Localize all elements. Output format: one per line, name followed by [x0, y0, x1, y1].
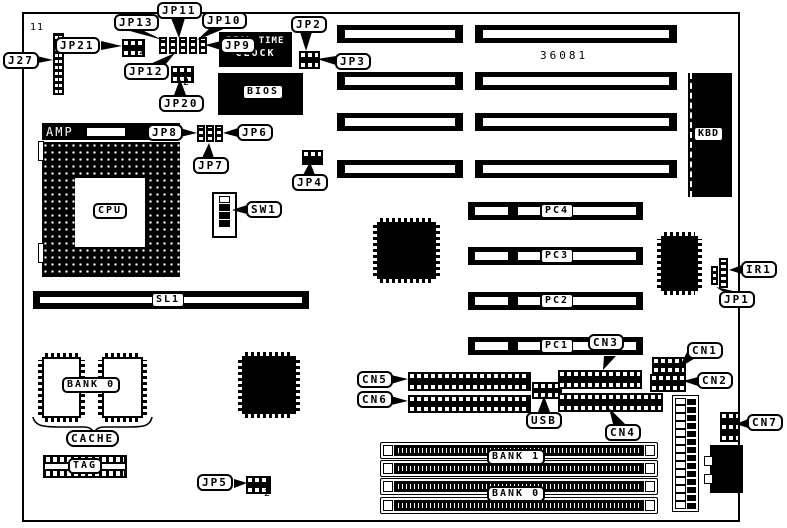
slot-stripe — [345, 118, 455, 126]
callout-jp9: JP9 — [220, 37, 256, 54]
jp2-jp3-jumper — [299, 51, 320, 69]
pin-row — [722, 436, 738, 440]
pin-row — [560, 383, 640, 387]
slot-stripe — [573, 297, 636, 305]
pc4-label: PC4 — [541, 204, 573, 218]
jumper-block-3 — [179, 37, 187, 54]
pin-row — [560, 406, 661, 410]
slot-stripe — [475, 297, 508, 305]
simm-clip — [645, 445, 655, 456]
pin-pattern — [217, 127, 221, 140]
callout-cn3: CN3 — [588, 334, 624, 351]
chipset-qfp-left — [238, 352, 300, 418]
jp20-pin2-annotation: 2 — [183, 77, 190, 88]
pin-pattern — [199, 127, 203, 140]
slot-stripe — [518, 297, 540, 305]
callout-cn7: CN7 — [747, 414, 783, 431]
pin-pattern — [208, 127, 212, 140]
pc3-label: PC3 — [541, 249, 573, 263]
callout-cn5: CN5 — [357, 371, 393, 388]
callout-usb: USB — [526, 412, 562, 429]
simm-clip — [383, 481, 393, 492]
cpu-label: CPU — [93, 203, 127, 219]
jp8-jumper-1 — [197, 125, 205, 142]
jumper-block-5 — [199, 37, 207, 54]
plug-notch — [704, 456, 713, 466]
cache-label: CACHE — [66, 430, 119, 447]
callout-jp10: JP10 — [202, 12, 247, 29]
callout-j27: J27 — [3, 52, 39, 69]
pin-row — [534, 384, 560, 388]
pin-stubs — [245, 414, 293, 418]
amp-text: AMP — [46, 125, 74, 139]
cn2-jumper — [650, 374, 686, 392]
ir1-jumper-right — [719, 258, 728, 288]
jp8-jumper-3 — [215, 125, 223, 142]
isa-slot-4-right — [475, 160, 677, 178]
sl1-label: SL1 — [152, 293, 184, 307]
tag-label: TAG — [68, 458, 102, 474]
callout-jp1: JP1 — [719, 291, 755, 308]
pin-stubs — [143, 360, 147, 415]
motherboard-diagram: 36081 KBD REAL TIME CLOCK BIOS 2 11 2 AM… — [0, 0, 787, 528]
jp8-jumper-2 — [206, 125, 214, 142]
chip-body — [661, 236, 698, 291]
plug-notch — [704, 474, 713, 484]
pin-pattern — [181, 39, 185, 52]
ir1-jumper-left — [711, 266, 718, 285]
j27-pincount-annotation: 11 — [30, 22, 44, 33]
slot-stripe — [345, 165, 455, 173]
simm-ticks — [398, 503, 640, 508]
isa-slot-3-left — [337, 113, 463, 131]
pin-row — [301, 53, 318, 57]
cn4-header — [558, 393, 663, 412]
jp4-jumper — [302, 150, 323, 165]
callout-jp12: JP12 — [124, 63, 169, 80]
callout-cn1: CN1 — [687, 342, 723, 359]
pin-row — [410, 385, 529, 389]
dip-cell — [219, 204, 230, 211]
callout-jp4: JP4 — [292, 174, 328, 191]
amp-window — [87, 128, 125, 136]
kbd-dashed-edge — [690, 73, 692, 197]
callout-jp13: JP13 — [114, 14, 159, 31]
pin-stubs — [436, 225, 440, 276]
cache-bank0-label: BANK 0 — [62, 377, 120, 393]
cn3-header — [558, 370, 642, 389]
pin-pattern — [161, 39, 165, 52]
isa-slot-2-right — [475, 72, 677, 90]
cn7-jumper — [720, 412, 740, 442]
dip-cell-open — [219, 196, 230, 203]
callout-jp21: JP21 — [55, 37, 100, 54]
slot-stripe — [475, 342, 508, 350]
callout-cn4: CN4 — [605, 424, 641, 441]
io-qfp-right — [657, 232, 702, 295]
pin-row — [652, 376, 684, 380]
pc1-label: PC1 — [541, 339, 573, 353]
bank0-simm-label: BANK 0 — [487, 486, 545, 502]
simm-clip — [383, 500, 393, 511]
callout-jp3: JP3 — [335, 53, 371, 70]
slot-stripe — [345, 77, 455, 85]
isa-slot-3-right — [475, 113, 677, 131]
simm-clip — [645, 500, 655, 511]
callout-ir1: IR1 — [741, 261, 777, 278]
bank1-label: BANK 1 — [487, 449, 545, 465]
jumper-block-2 — [169, 37, 177, 54]
pin-column — [687, 398, 696, 509]
isa-slot-4-left — [337, 160, 463, 178]
isa-slot-1-right — [475, 25, 677, 43]
callout-jp11: JP11 — [157, 2, 202, 19]
socket-tab-top — [38, 141, 44, 161]
pin-stubs — [664, 291, 695, 295]
pin-row — [722, 414, 738, 418]
pin-row — [410, 397, 529, 401]
pin-row — [410, 407, 529, 411]
slot-stripe — [483, 30, 669, 38]
power-connector — [672, 395, 699, 512]
chipset-qfp-center — [373, 218, 440, 283]
pin-row — [173, 68, 192, 72]
pin-row — [124, 41, 143, 45]
simm-clip — [383, 463, 393, 474]
pin-pattern — [171, 39, 175, 52]
at-keyboard-plug — [710, 445, 743, 493]
slot-stripe — [475, 207, 508, 215]
bios-label: BIOS — [243, 85, 283, 99]
slot-stripe — [475, 252, 508, 260]
callout-jp20: JP20 — [159, 95, 204, 112]
callout-jp8: JP8 — [147, 124, 183, 141]
pin-column — [675, 398, 686, 509]
callout-jp6: JP6 — [237, 124, 273, 141]
isa-slot-2-left — [337, 72, 463, 90]
pin-row — [560, 395, 661, 399]
pin-stubs — [380, 279, 433, 283]
slot-stripe — [345, 30, 455, 38]
kbd-label: KBD — [694, 127, 723, 141]
pc2-label: PC2 — [541, 294, 573, 308]
dip-cell — [219, 212, 230, 219]
pin-stubs — [105, 418, 140, 422]
callout-jp7: JP7 — [193, 157, 229, 174]
jumper-block-1 — [159, 37, 167, 54]
simm-clip — [383, 445, 393, 456]
slot-stripe — [573, 252, 636, 260]
cn6-header — [408, 395, 531, 413]
pin-pattern — [713, 268, 716, 283]
pin-stubs — [698, 239, 702, 288]
callout-cn2: CN2 — [697, 372, 733, 389]
simm-clip — [645, 481, 655, 492]
pin-row — [301, 63, 318, 67]
chip-body — [377, 222, 436, 279]
pin-row — [410, 374, 529, 378]
jp5-pin2-annotation: 2 — [264, 488, 271, 499]
pin-row — [652, 386, 684, 390]
socket-tab-bottom — [38, 243, 44, 263]
callout-jp2: JP2 — [291, 16, 327, 33]
simm-clip — [645, 463, 655, 474]
pin-row — [722, 425, 738, 429]
pin-pattern — [191, 39, 195, 52]
dip-cell — [219, 220, 230, 227]
callout-sw1: SW1 — [246, 201, 282, 218]
isa-slot-1-left — [337, 25, 463, 43]
pin-row — [560, 372, 640, 376]
pin-row — [304, 152, 321, 156]
pin-row — [248, 478, 269, 482]
slot-stripe — [483, 118, 669, 126]
slot-stripe — [483, 77, 669, 85]
slot-stripe — [518, 252, 540, 260]
pin-pattern — [201, 39, 205, 52]
slot-stripe — [483, 165, 669, 173]
board-part-number: 36081 — [540, 49, 588, 62]
pin-pattern — [721, 260, 726, 286]
pin-row — [654, 359, 684, 363]
slot-stripe — [518, 342, 540, 350]
pin-row — [534, 393, 560, 397]
jumper-block-4 — [189, 37, 197, 54]
callout-cn6: CN6 — [357, 391, 393, 408]
cn1-jumper — [652, 357, 686, 374]
sw1-dip-switch — [212, 192, 237, 238]
chip-body — [242, 356, 296, 414]
simm-ticks — [398, 466, 640, 471]
slot-stripe — [573, 207, 636, 215]
jp21-pin2-annotation: 2 — [139, 46, 146, 57]
pin-stubs — [296, 359, 300, 411]
slot-stripe — [518, 207, 540, 215]
pin-stubs — [45, 418, 78, 422]
cn5-header — [408, 372, 531, 391]
pin-row — [654, 368, 684, 372]
callout-jp5: JP5 — [197, 474, 233, 491]
